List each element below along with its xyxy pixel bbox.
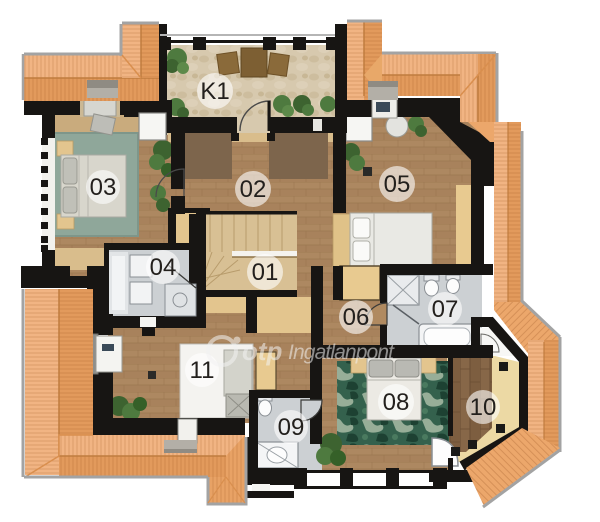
svg-text:K1: K1 (200, 78, 229, 105)
svg-text:03: 03 (90, 174, 117, 201)
svg-text:06: 06 (343, 304, 370, 331)
svg-text:04: 04 (150, 254, 177, 281)
svg-text:10: 10 (470, 394, 497, 421)
svg-text:08: 08 (383, 389, 410, 416)
svg-text:Ingatlanpont: Ingatlanpont (288, 341, 395, 364)
svg-text:otp: otp (242, 336, 283, 366)
svg-text:05: 05 (384, 171, 411, 198)
svg-text:02: 02 (240, 176, 267, 203)
svg-text:07: 07 (432, 296, 459, 323)
svg-text:09: 09 (278, 414, 305, 441)
svg-text:01: 01 (252, 259, 279, 286)
